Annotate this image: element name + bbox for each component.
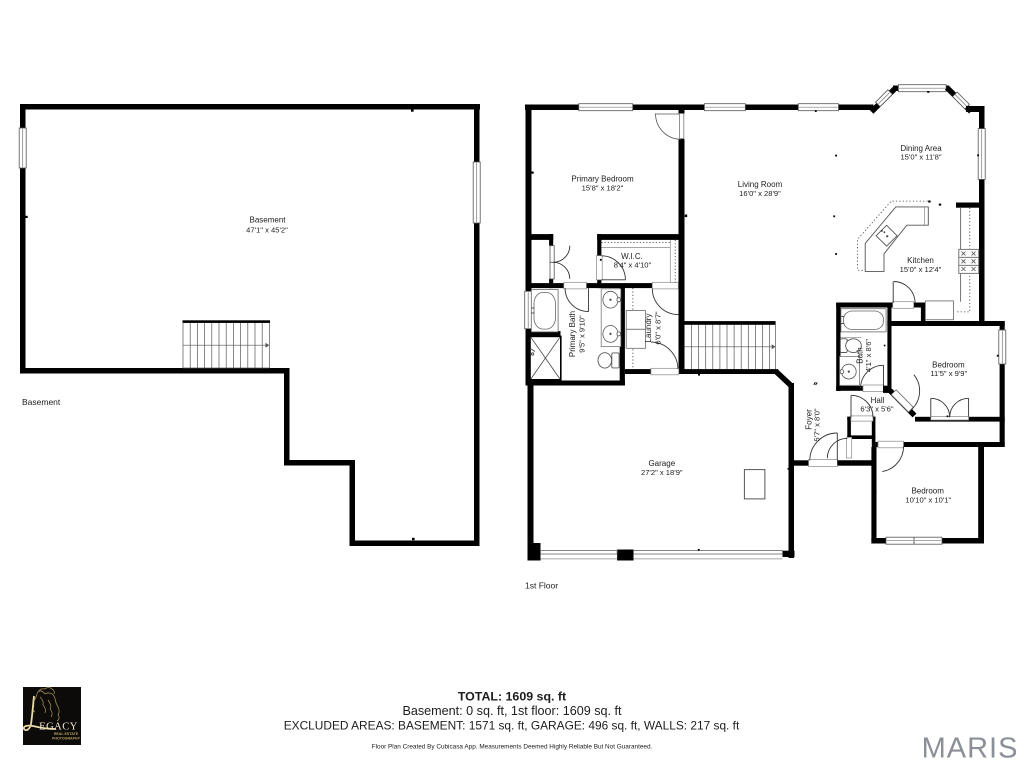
svg-text:8'4" x 4'10": 8'4" x 4'10" — [614, 260, 652, 269]
svg-text:15'8" x 18'2": 15'8" x 18'2" — [582, 183, 624, 192]
svg-text:16'0" x 28'9": 16'0" x 28'9" — [739, 189, 781, 198]
svg-text:Basement: Basement — [22, 397, 61, 407]
svg-text:15'0" x 11'8": 15'0" x 11'8" — [900, 152, 941, 161]
svg-text:Primary Bedroom: Primary Bedroom — [571, 175, 634, 184]
svg-text:5'7" x 8'0": 5'7" x 8'0" — [813, 408, 822, 442]
svg-text:REAL ESTATE: REAL ESTATE — [54, 732, 79, 736]
svg-text:Kitchen: Kitchen — [907, 256, 934, 265]
svg-text:EXCLUDED AREAS: BASEMENT: 1571: EXCLUDED AREAS: BASEMENT: 1571 sq. ft, G… — [284, 719, 740, 733]
svg-text:Basement: 0 sq. ft, 1st floor:: Basement: 0 sq. ft, 1st floor: 1609 sq. … — [402, 704, 622, 718]
svg-text:15'0" x 12'4": 15'0" x 12'4" — [900, 265, 942, 274]
svg-text:Living Room: Living Room — [738, 180, 783, 189]
svg-text:47'1" x 45'2": 47'1" x 45'2" — [246, 226, 288, 235]
svg-text:9'5" x 9'10": 9'5" x 9'10" — [578, 315, 587, 353]
svg-text:Bedroom: Bedroom — [911, 487, 944, 496]
svg-text:Floor Plan Created By Cubicasa: Floor Plan Created By Cubicasa App. Meas… — [372, 744, 653, 751]
svg-text:TOTAL: 1609 sq. ft: TOTAL: 1609 sq. ft — [458, 690, 566, 704]
svg-text:PHOTOGRAPHY: PHOTOGRAPHY — [52, 737, 81, 741]
svg-text:10'10" x 10'1": 10'10" x 10'1" — [905, 496, 951, 505]
svg-text:27'2" x 18'9": 27'2" x 18'9" — [641, 468, 683, 477]
svg-text:Primary Bath: Primary Bath — [568, 311, 577, 357]
svg-text:MARIS: MARIS — [922, 733, 1019, 765]
svg-text:EGACY: EGACY — [39, 722, 78, 733]
svg-text:Garage: Garage — [648, 459, 675, 468]
svg-text:Basement: Basement — [249, 216, 286, 225]
svg-text:Laundry: Laundry — [644, 314, 653, 343]
svg-text:4'1" x 8'6": 4'1" x 8'6" — [864, 339, 873, 373]
svg-text:11'5" x 9'9": 11'5" x 9'9" — [930, 369, 967, 378]
svg-text:6'0" x 8'7": 6'0" x 8'7" — [654, 311, 663, 345]
svg-text:6'3" x 5'6": 6'3" x 5'6" — [860, 404, 894, 413]
svg-text:1st Floor: 1st Floor — [525, 581, 558, 591]
